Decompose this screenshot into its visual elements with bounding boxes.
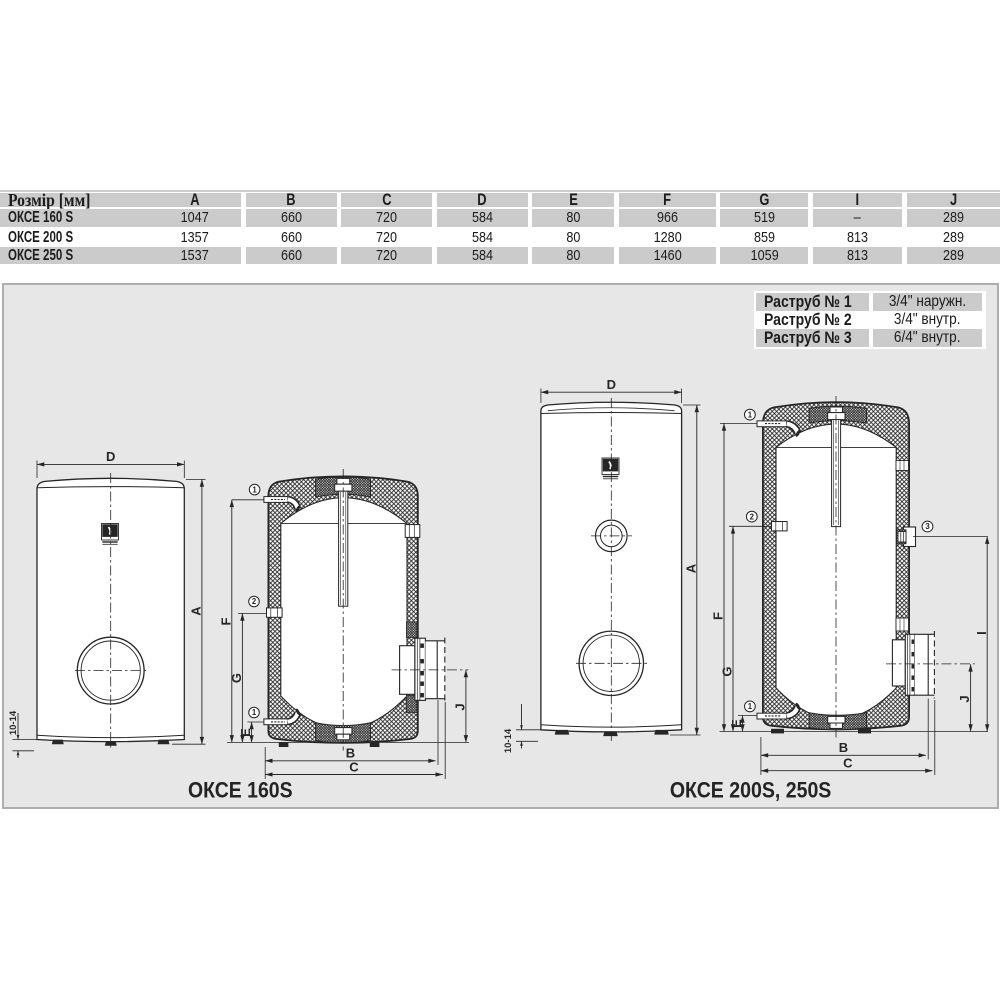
svg-text:10-14: 10-14 (8, 710, 19, 735)
svg-text:A: A (189, 606, 204, 616)
svg-text:F: F (711, 612, 726, 620)
svg-text:B: B (839, 740, 848, 755)
svg-text:G: G (229, 673, 244, 683)
svg-text:A: A (683, 563, 698, 573)
svg-text:D: D (106, 449, 115, 464)
svg-text:2: 2 (750, 512, 755, 521)
svg-text:1: 1 (748, 702, 753, 711)
svg-text:B: B (346, 746, 355, 761)
svg-text:1: 1 (252, 708, 257, 717)
svg-text:ОКСЕ 160S: ОКСЕ 160S (188, 778, 293, 803)
svg-text:E: E (238, 728, 253, 737)
svg-text:E: E (729, 719, 744, 728)
svg-text:1: 1 (748, 410, 753, 419)
svg-text:G: G (720, 666, 735, 676)
svg-text:3: 3 (925, 522, 930, 531)
svg-text:F: F (218, 617, 233, 625)
svg-text:C: C (349, 759, 359, 774)
svg-text:I: I (974, 631, 989, 635)
svg-text:J: J (453, 703, 468, 710)
svg-text:1: 1 (252, 485, 257, 494)
svg-text:2: 2 (252, 597, 257, 606)
svg-text:10-14: 10-14 (503, 728, 514, 753)
svg-text:C: C (843, 756, 853, 771)
svg-text:D: D (607, 377, 616, 392)
svg-text:J: J (957, 695, 972, 702)
svg-text:ОКСЕ 200S, 250S: ОКСЕ 200S, 250S (670, 778, 832, 803)
